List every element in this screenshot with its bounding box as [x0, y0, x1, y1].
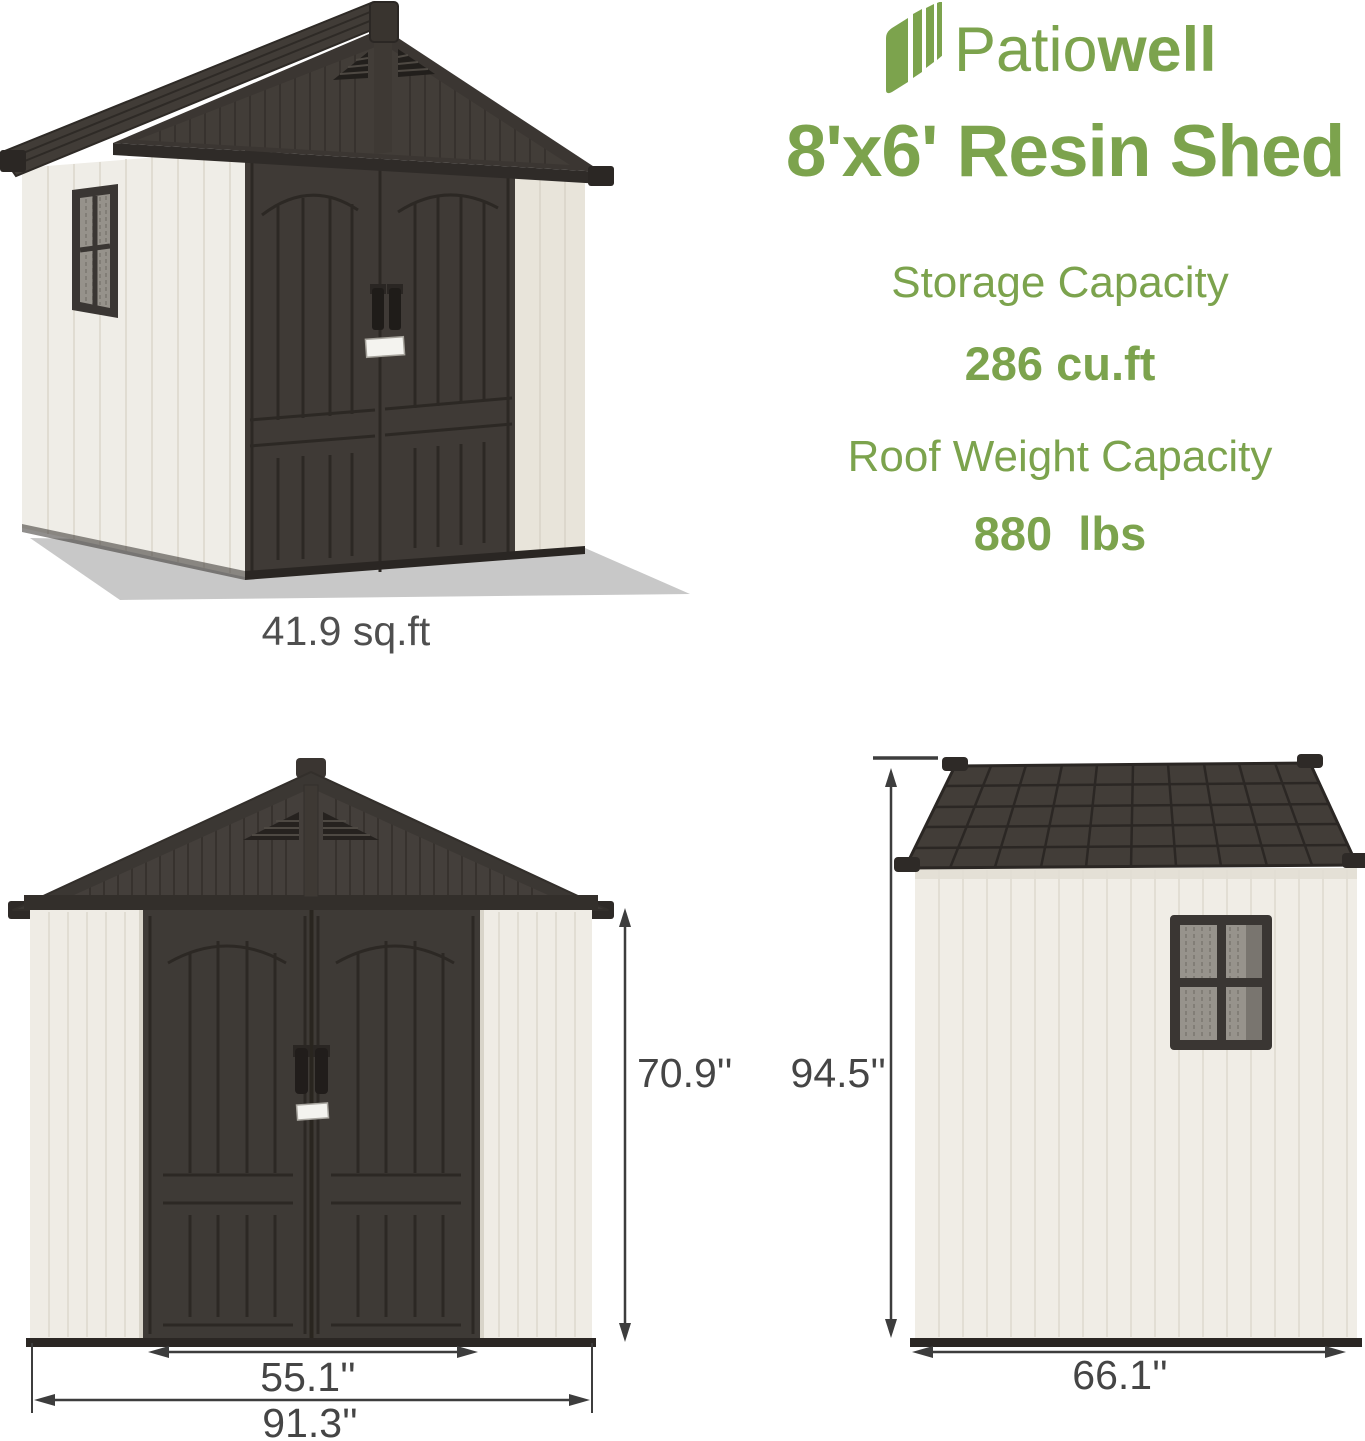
front-roof [8, 758, 614, 919]
door-latch [365, 337, 404, 358]
roof-corner-cap [942, 757, 968, 771]
brand-logo-text: Patiowell [954, 14, 1217, 86]
front-doors [143, 910, 480, 1338]
spec-value-storage-capacity: 286 cu.ft [765, 336, 1355, 391]
gable-center-trim [374, 40, 392, 154]
side-depth-dimension-label: 66.1'' [970, 1352, 1270, 1399]
door-handle [295, 1048, 308, 1094]
spec-value-roof-weight-capacity: 880 lbs [765, 506, 1355, 561]
front-right-pillar [480, 910, 592, 1338]
patiowell-pages-icon [884, 2, 942, 98]
eave-corner-cap [588, 166, 614, 186]
door-handle [315, 1048, 328, 1094]
logo-text-regular: Patio [954, 15, 1098, 85]
door-handle [372, 288, 384, 330]
front-base-strip [26, 1338, 596, 1347]
side-wall [915, 868, 1357, 1338]
door-latch [297, 1103, 329, 1120]
shed-front-view [0, 745, 745, 1441]
side-roof [894, 754, 1365, 872]
roof-corner-cap [1297, 754, 1323, 768]
roof-corner-cap [894, 857, 920, 872]
product-title: 8'x6' Resin Shed [765, 110, 1365, 193]
footprint-caption: 41.9 sq.ft [196, 608, 496, 655]
perspective-right-pillar [515, 172, 585, 556]
door-handle [389, 288, 401, 330]
side-height-dimension-label: 94.5'' [740, 1050, 886, 1097]
perspective-side-window [72, 184, 118, 318]
roof-corner-cap [1342, 853, 1365, 868]
perspective-front-doors [245, 150, 515, 577]
front-overall-width-dimension-label: 91.3'' [160, 1400, 460, 1441]
front-left-pillar [30, 910, 143, 1338]
front-height-dimension-label: 70.9'' [637, 1050, 732, 1097]
shed-perspective-view [0, 0, 700, 665]
ridge-cap [370, 2, 398, 42]
brand-logo: Patiowell [884, 6, 1217, 94]
spec-label-roof-weight-capacity: Roof Weight Capacity [765, 432, 1355, 482]
front-door-width-dimension-label: 55.1'' [158, 1354, 458, 1401]
side-window [1170, 915, 1272, 1050]
shed-infographic: 41.9 sq.ft Patiowell 8'x6' Resin Shed St… [0, 0, 1365, 1441]
logo-text-bold: well [1098, 15, 1217, 85]
side-base-strip [910, 1338, 1362, 1347]
spec-label-storage-capacity: Storage Capacity [765, 258, 1355, 308]
perspective-side-wall [22, 150, 245, 580]
